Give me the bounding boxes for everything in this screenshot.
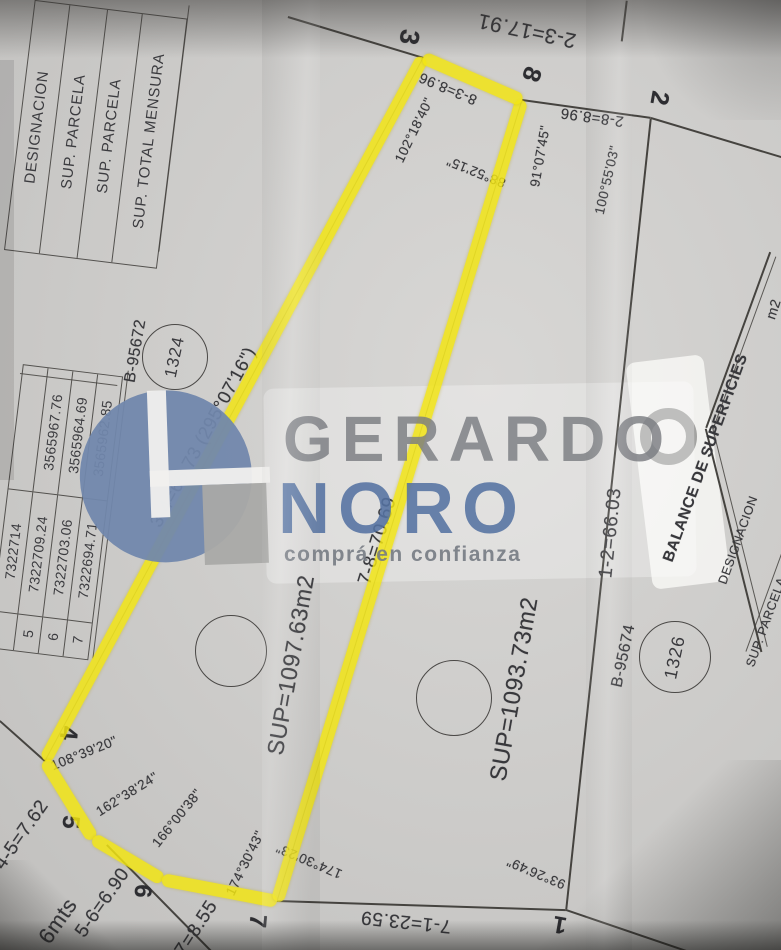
logo-gray-square xyxy=(202,483,269,565)
lot-number-circle-1324: 1324 xyxy=(142,324,208,390)
balance-unit-m2: m2 xyxy=(762,297,781,321)
angle-100: 100°55'03" xyxy=(592,144,622,216)
vertex-6: 6 xyxy=(127,883,156,899)
highlight-edge-4-5 xyxy=(39,757,98,842)
balance-sup-parcela: SUP. PARCELA xyxy=(743,575,781,669)
dim-2-3: 2-3=17.91 xyxy=(476,8,578,52)
angle-166: 166°00'38" xyxy=(149,786,205,850)
registry-b95674: B-95674 xyxy=(609,623,640,689)
angle-162: 162°38'24" xyxy=(93,769,161,819)
lot-number-1326: 1326 xyxy=(660,633,690,680)
vertex-3: 3 xyxy=(392,27,425,47)
edge-7-1 xyxy=(277,900,566,911)
line-ext-past-1 xyxy=(566,909,692,950)
empty-circle-parcel-b xyxy=(416,660,492,736)
small-line-top-right xyxy=(621,1,627,42)
survey-plan-photo: DESIGNACION SUP. PARCELA SUP. PARCELA SU… xyxy=(0,0,781,950)
balance-designacion: DESIGNACION xyxy=(716,494,761,586)
brand-logo-icon xyxy=(77,387,273,574)
highlight-edge-6-7 xyxy=(161,873,278,908)
lot-number-circle-1326: 1326 xyxy=(639,621,711,693)
coord-pt: 7 xyxy=(64,620,92,660)
area-parcel-b: SUP=1093.73m2 xyxy=(485,595,544,783)
area-parcel-a: SUP=1097.63m2 xyxy=(262,573,320,757)
brand-name-bottom: NORO xyxy=(278,468,526,550)
brand-slogan: comprá en confianza xyxy=(284,543,521,567)
street-line-left-of-4 xyxy=(0,720,46,762)
vertex-7: 7 xyxy=(242,913,271,929)
dim-5-6: 5-6=6.90 xyxy=(71,864,135,942)
coord-pt: 6 xyxy=(39,616,67,656)
lot-number-1324: 1324 xyxy=(161,334,189,379)
dim-7-1: 7-1=23.59 xyxy=(360,905,452,936)
vertex-8: 8 xyxy=(515,63,547,86)
vertex-1: 1 xyxy=(551,909,569,939)
vertex-2: 2 xyxy=(644,89,675,108)
empty-circle-parcel-a xyxy=(195,615,267,687)
coord-pt: 5 xyxy=(14,613,42,653)
dim-2-8: 2-8=8.96 xyxy=(559,104,624,130)
angle-91: 91°07'45" xyxy=(527,124,553,188)
brand-name-top: GERARDO xyxy=(283,402,673,476)
balance-table-border-a xyxy=(705,252,770,428)
dim-1-2: 1-2=66.03 xyxy=(595,487,626,579)
street-line-right-of-2 xyxy=(651,117,781,158)
dim-4-5: 4-5=7.62 xyxy=(0,796,54,874)
dim-6-7: 6-7=8.55 xyxy=(161,897,223,950)
angle-93: 93°26'49" xyxy=(504,854,567,892)
surface-header-table: DESIGNACION SUP. PARCELA SUP. PARCELA SU… xyxy=(4,0,188,269)
